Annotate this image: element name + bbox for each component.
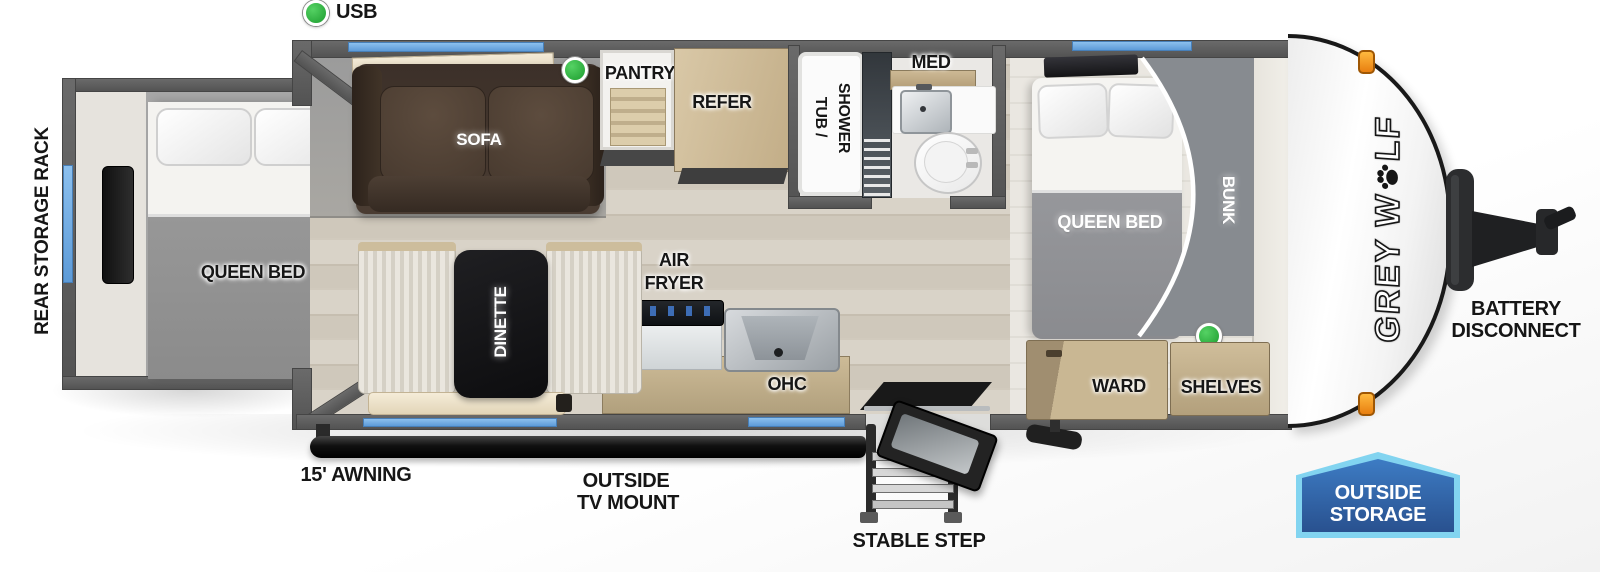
dinette-bench-left-cap bbox=[358, 242, 456, 251]
sofa-indicator-dot bbox=[562, 57, 588, 83]
marker-light-top bbox=[1358, 50, 1375, 74]
marker-light-bottom bbox=[1358, 392, 1375, 416]
refrigerator-base bbox=[678, 168, 789, 184]
tongue-jack bbox=[1440, 155, 1580, 305]
med-label: MED bbox=[901, 52, 961, 73]
battery-disconnect-label-line2: DISCONNECT bbox=[1436, 320, 1596, 343]
dinette-window bbox=[363, 418, 557, 427]
pantry-shelves bbox=[610, 88, 666, 146]
shower-door-rungs bbox=[864, 134, 890, 196]
front-queen-bed-label: QUEEN BED bbox=[1040, 212, 1180, 233]
wardrobe-handle bbox=[1046, 350, 1062, 357]
shelves-label: SHELVES bbox=[1161, 377, 1281, 398]
kitchen-faucet bbox=[774, 348, 783, 357]
rear-slide-top-wall bbox=[62, 78, 310, 92]
tub-shower-label-line1: TUB / bbox=[811, 87, 829, 147]
stable-step-label: STABLE STEP bbox=[839, 530, 999, 553]
bath-faucet bbox=[916, 84, 932, 90]
awning-label: 15' AWNING bbox=[276, 464, 436, 487]
dinette-bench-right-cap bbox=[546, 242, 642, 251]
sofa-label: SOFA bbox=[429, 130, 529, 150]
stabilizer-jack-stub bbox=[1050, 420, 1060, 432]
toilet-hinge-bottom bbox=[966, 162, 978, 168]
cooktop-burners bbox=[632, 306, 714, 316]
dinette-base-end bbox=[556, 394, 572, 412]
step-foot-right bbox=[944, 512, 962, 523]
tub-shower-label-line2: SHOWER bbox=[834, 70, 852, 166]
bath-bottom-wall-left bbox=[788, 196, 872, 209]
rear-wall-window bbox=[63, 165, 73, 283]
tv-mount-label-line1: OUTSIDE bbox=[546, 470, 706, 493]
battery-disconnect-label-line1: BATTERY bbox=[1436, 298, 1596, 321]
brand-text-part2: LF bbox=[1369, 114, 1408, 162]
toilet-seat bbox=[924, 141, 968, 183]
refer-label: REFER bbox=[672, 92, 772, 113]
dinette-bench-left bbox=[358, 246, 456, 394]
dinette-bench-right bbox=[546, 246, 642, 394]
rear-bed-pillow-left bbox=[156, 108, 252, 166]
tub bbox=[798, 52, 864, 196]
rear-queen-bed-label: QUEEN BED bbox=[183, 262, 323, 283]
bunk-panel bbox=[1000, 40, 1280, 360]
step-rung-4 bbox=[872, 500, 954, 509]
outside-storage-label-line2: STORAGE bbox=[1330, 504, 1426, 526]
bath-drain bbox=[920, 106, 926, 112]
ward-label: WARD bbox=[1069, 376, 1169, 397]
ohc-label: OHC bbox=[747, 374, 827, 395]
bunk-label: BUNK bbox=[1218, 170, 1238, 230]
brand-logo: GREY W LF bbox=[1365, 77, 1411, 380]
dinette-label: DINETTE bbox=[491, 259, 511, 385]
bath-bottom-wall-right bbox=[950, 196, 1006, 209]
pantry-base bbox=[600, 150, 678, 166]
bath-sink bbox=[900, 90, 952, 134]
rear-storage-rack-label: REAR STORAGE RACK bbox=[32, 114, 54, 348]
sofa-window bbox=[348, 42, 544, 52]
awning-tube bbox=[310, 436, 866, 458]
kitchen-window bbox=[748, 417, 845, 427]
sofa-front-skirt bbox=[368, 176, 590, 212]
paw-icon bbox=[1374, 162, 1402, 192]
rear-tv bbox=[102, 166, 134, 284]
brand-text-part1: GREY W bbox=[1369, 192, 1408, 344]
tv-mount-label-line2: TV MOUNT bbox=[548, 492, 708, 515]
usb-indicator-dot bbox=[303, 0, 329, 26]
step-foot-left bbox=[860, 512, 878, 523]
usb-label: USB bbox=[336, 1, 396, 24]
rv-floorplan: REAR STORAGE RACK QUEEN BED SOFA PANTRY … bbox=[0, 0, 1600, 572]
outside-storage-label-line1: OUTSIDE bbox=[1335, 482, 1422, 504]
step-rung-3 bbox=[872, 484, 954, 493]
toilet-hinge-top bbox=[966, 148, 978, 154]
